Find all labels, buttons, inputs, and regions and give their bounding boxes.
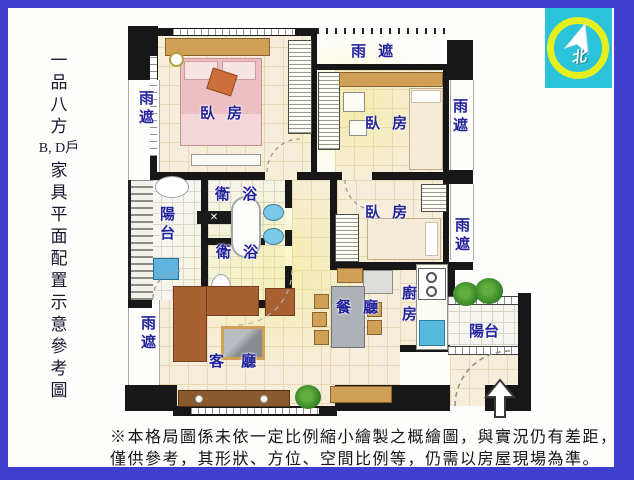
title-char: 一: [51, 52, 68, 69]
label-bedroom1: 臥 房: [200, 102, 242, 123]
title-char: 考: [51, 360, 68, 377]
title-char-unit: B, D戶: [39, 140, 79, 157]
entrance-arrow-icon: [486, 380, 514, 417]
label-balcony-right: 陽台: [469, 320, 499, 341]
title-char: 示: [51, 294, 68, 311]
title-char: 置: [51, 272, 68, 289]
disclaimer-line2: 僅供參考，其形狀、方位、空間比例等，仍需以房屋現場為準。: [110, 449, 630, 471]
plan-overlay: [125, 14, 537, 420]
label-living-room: 客 廳: [209, 350, 256, 371]
title-char: 平: [51, 206, 68, 223]
label-dining-room: 餐 廳: [336, 296, 378, 317]
floor-plan: ✕: [125, 14, 537, 420]
title-char: 參: [51, 338, 68, 355]
label-canopy-right-top: 雨遮: [452, 98, 467, 136]
title-char: 品: [51, 74, 68, 91]
disclaimer: ※本格局圖係未依一定比例縮小繪製之概繪圖，與實況仍有差距， 僅供參考，其形狀、方…: [110, 427, 630, 471]
title-char: 面: [51, 228, 68, 245]
label-bedroom3: 臥 房: [365, 201, 407, 222]
title-char: 意: [51, 316, 68, 333]
side-title: 一 品 八 方 B, D戶 家 具 平 面 配 置 示 意 參 考 圖: [36, 52, 82, 404]
label-balcony-left: 陽台: [159, 206, 174, 244]
title-char: 具: [51, 184, 68, 201]
label-canopy-right-bottom: 雨遮: [454, 217, 469, 255]
disclaimer-line1: ※本格局圖係未依一定比例縮小繪製之概繪圖，與實況仍有差距，: [110, 427, 630, 449]
bedroom1-door-swing: [267, 139, 300, 172]
floorplan-screenshot: 一 品 八 方 B, D戶 家 具 平 面 配 置 示 意 參 考 圖 北: [0, 0, 634, 480]
label-canopy-top: 雨 遮: [351, 40, 393, 61]
title-char: 八: [51, 96, 68, 113]
label-kitchen: 廚房: [401, 285, 416, 327]
label-bathroom1: 衛 浴: [215, 183, 257, 204]
hall-arc: [237, 270, 292, 325]
label-canopy-left-bottom: 雨遮: [140, 315, 155, 353]
title-char: 家: [51, 162, 68, 179]
compass: 北: [545, 8, 612, 88]
label-bathroom2: 衛 浴: [216, 241, 258, 262]
title-char: 方: [51, 118, 68, 135]
label-bedroom2: 臥 房: [365, 112, 407, 133]
title-char: 配: [51, 250, 68, 267]
label-canopy-left-top: 雨遮: [138, 90, 153, 128]
title-char: 圖: [51, 382, 68, 399]
balcony-door-swing: [153, 271, 180, 298]
